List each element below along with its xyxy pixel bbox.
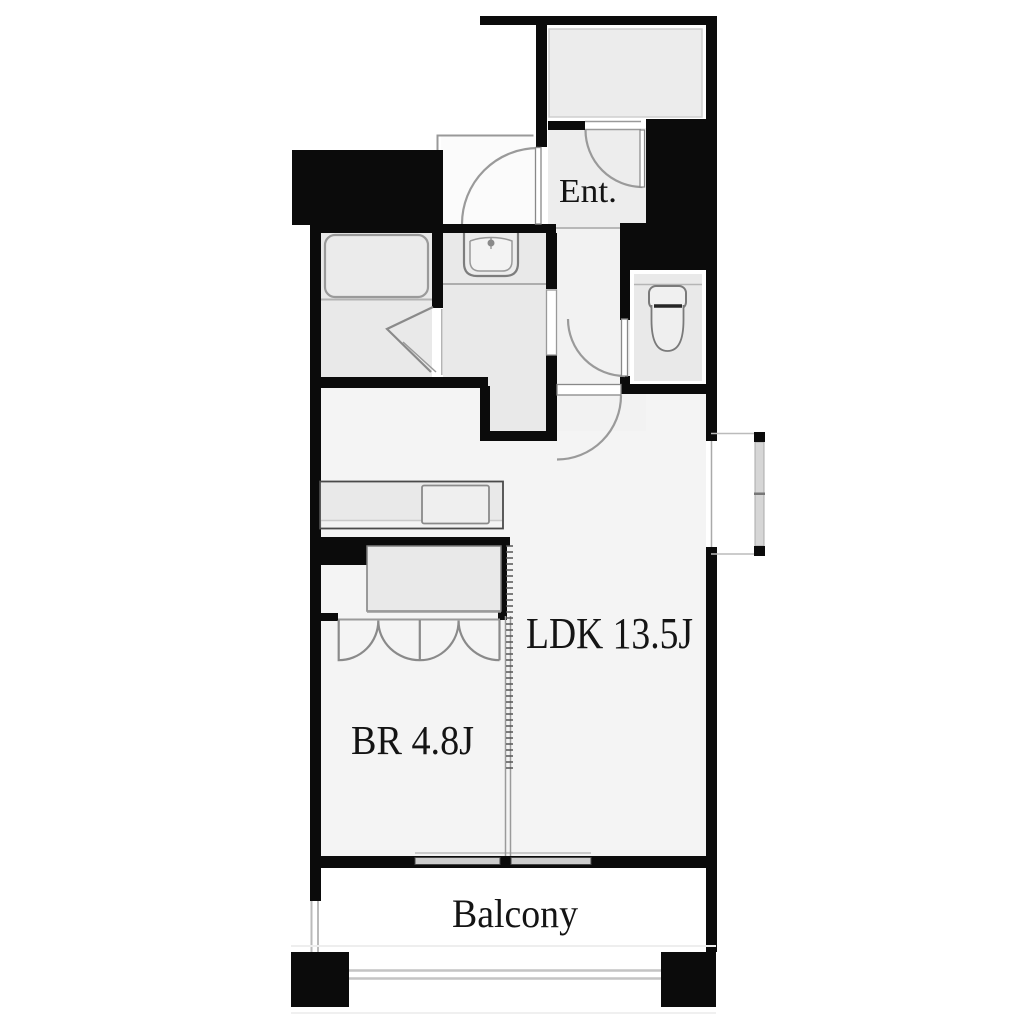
svg-text:LDK 13.5J: LDK 13.5J (526, 609, 693, 658)
svg-text:BR 4.8J: BR 4.8J (351, 717, 474, 763)
svg-text:Ent.: Ent. (559, 173, 617, 210)
svg-text:Balcony: Balcony (452, 891, 578, 936)
